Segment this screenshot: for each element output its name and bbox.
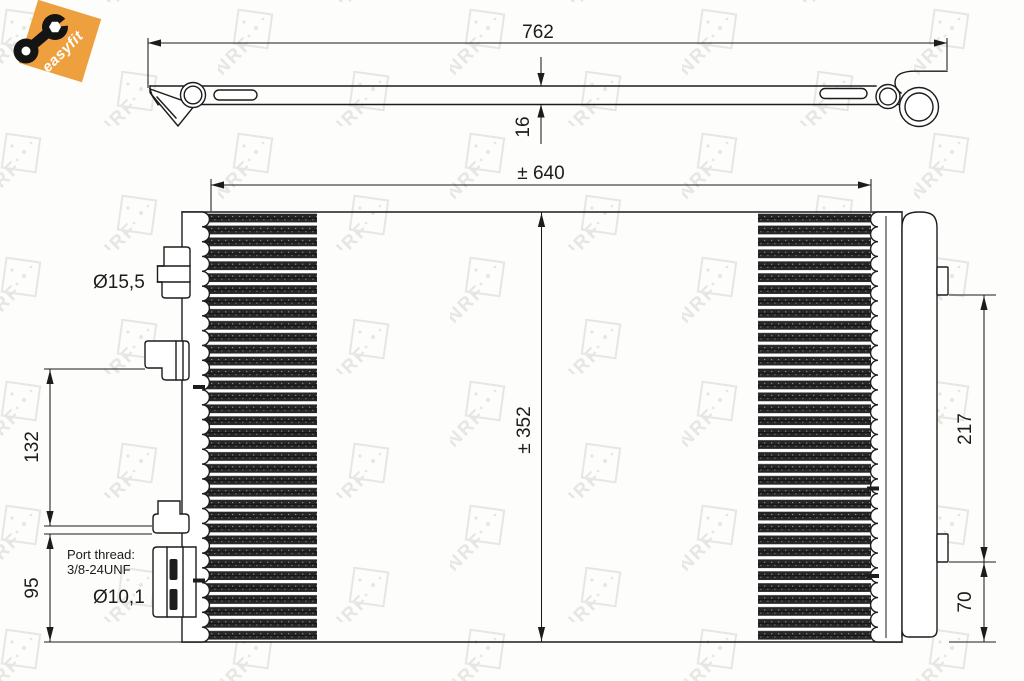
- top-port-diameter-label: Ø15,5: [93, 272, 145, 293]
- technical-drawing-page: NRF NRF 762: [0, 0, 1024, 681]
- right-fin-core: [758, 213, 871, 641]
- mounting-hole-top-view: [181, 83, 206, 108]
- dim-640-label: ± 640: [517, 163, 564, 184]
- mounting-slot-right: [820, 89, 867, 99]
- dim-352-label: ± 352: [514, 406, 535, 453]
- bottom-port-diameter-label: Ø10,1: [93, 587, 145, 608]
- port-thread-label-line1: Port thread:: [67, 547, 135, 562]
- dim-95-label: 95: [22, 577, 43, 598]
- dim-16-label: 16: [513, 116, 534, 137]
- port-slot-upper: [170, 559, 178, 580]
- dim-132-label: 132: [22, 431, 43, 463]
- condenser-technical-drawing: NRF NRF 762: [0, 0, 1024, 681]
- drier-tab-lower: [937, 534, 948, 562]
- dim-762-label: 762: [522, 22, 554, 43]
- drier-tab-upper: [937, 267, 948, 295]
- dim-70-label: 70: [955, 591, 976, 612]
- port-slot-lower: [170, 589, 178, 610]
- mounting-slot-left: [214, 90, 257, 100]
- dim-217-label: 217: [955, 413, 976, 445]
- port-block: [153, 547, 196, 617]
- port-thread-label-line2: 3/8-24UNF: [67, 562, 131, 577]
- left-fin-core: [204, 213, 317, 641]
- drier-top-view: [900, 88, 939, 127]
